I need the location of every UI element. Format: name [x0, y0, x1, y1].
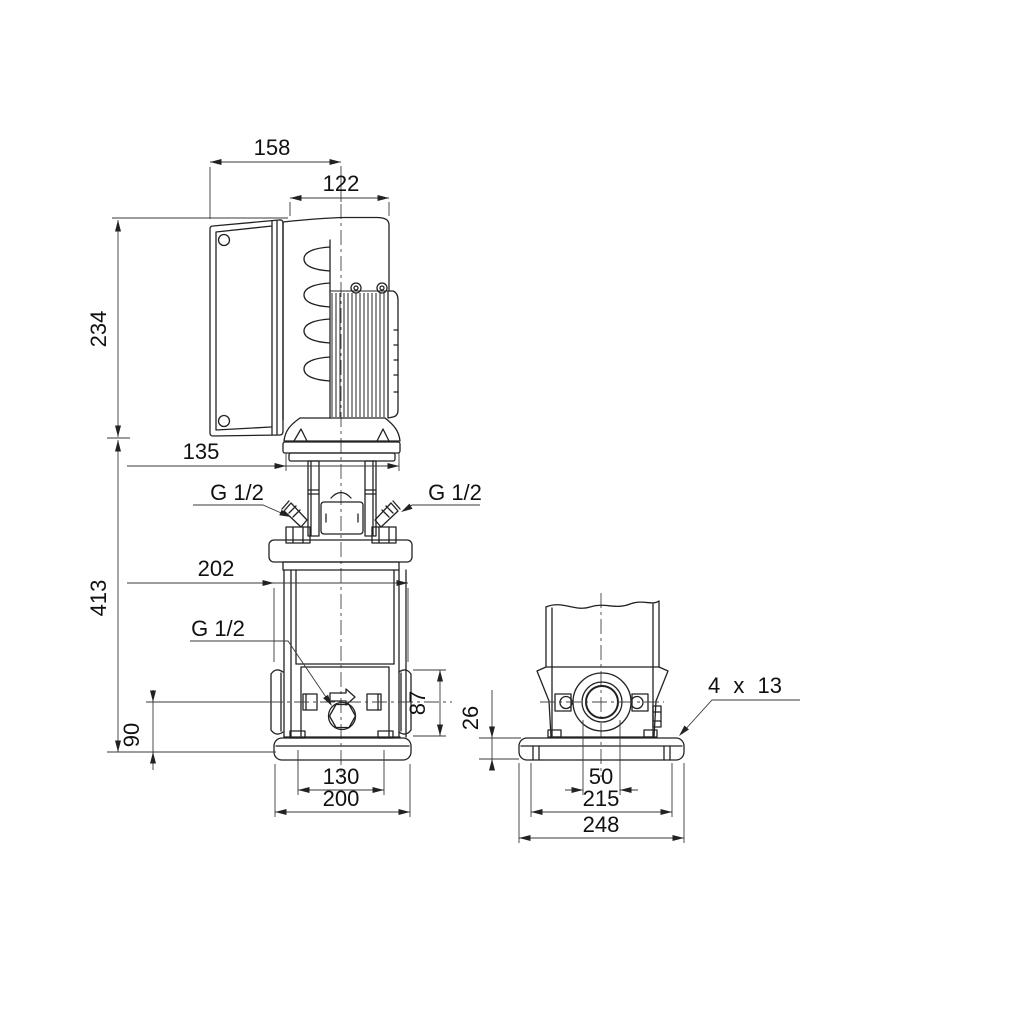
cover-screw-top [219, 235, 230, 246]
port-boss [540, 673, 664, 731]
motor-body [283, 218, 398, 421]
dim-234: 234 [86, 218, 288, 438]
base-plate-side [519, 738, 684, 760]
base-plate-front [274, 731, 411, 760]
side-view [519, 593, 684, 777]
pump-dimensional-drawing: 158 122 234 413 135 [0, 0, 1024, 1024]
motor-fins [330, 291, 388, 417]
dim-135-label: 135 [183, 439, 220, 464]
dim-215-label: 215 [583, 786, 620, 811]
dim-135: 135 [127, 439, 399, 471]
vent-right-label: G 1/2 [428, 480, 482, 505]
dim-90: 90 [119, 690, 268, 770]
drawing-canvas: 158 122 234 413 135 [0, 0, 1024, 1024]
vent-left-label: G 1/2 [210, 480, 264, 505]
dim-90-label: 90 [119, 723, 144, 747]
vent-plug-left [282, 501, 310, 543]
label-vent-right: G 1/2 [400, 480, 482, 515]
pump-head-flange [269, 540, 412, 570]
dim-158: 158 [210, 135, 341, 219]
dim-122-label: 122 [323, 171, 360, 196]
dim-26: 26 [458, 690, 521, 771]
dim-87-label: 87 [405, 691, 430, 715]
dim-158-label: 158 [254, 135, 291, 160]
dimensions: 158 122 234 413 135 [86, 135, 800, 843]
dim-234-label: 234 [86, 311, 111, 348]
dim-202-label: 202 [198, 556, 235, 581]
cover-screw-bottom [219, 416, 230, 427]
label-base-holes: 4 x 13 [677, 673, 800, 738]
drain-plug [329, 703, 356, 730]
base-holes-label: 4 x 13 [708, 673, 782, 698]
coupling-guard [308, 461, 376, 536]
dim-413-label: 413 [86, 580, 111, 617]
dim-200-label: 200 [323, 786, 360, 811]
drain-label: G 1/2 [191, 616, 245, 641]
fan-cover [283, 418, 400, 461]
label-vent-left: G 1/2 [193, 480, 292, 520]
nameplate [321, 502, 363, 534]
dim-26-label: 26 [458, 706, 483, 730]
dim-248-label: 248 [583, 812, 620, 837]
sleeve-broken [546, 601, 659, 736]
motor-control-box [210, 220, 283, 436]
dim-122: 122 [290, 171, 389, 216]
chamber-stack [284, 570, 406, 737]
dim-202: 202 [127, 556, 408, 662]
